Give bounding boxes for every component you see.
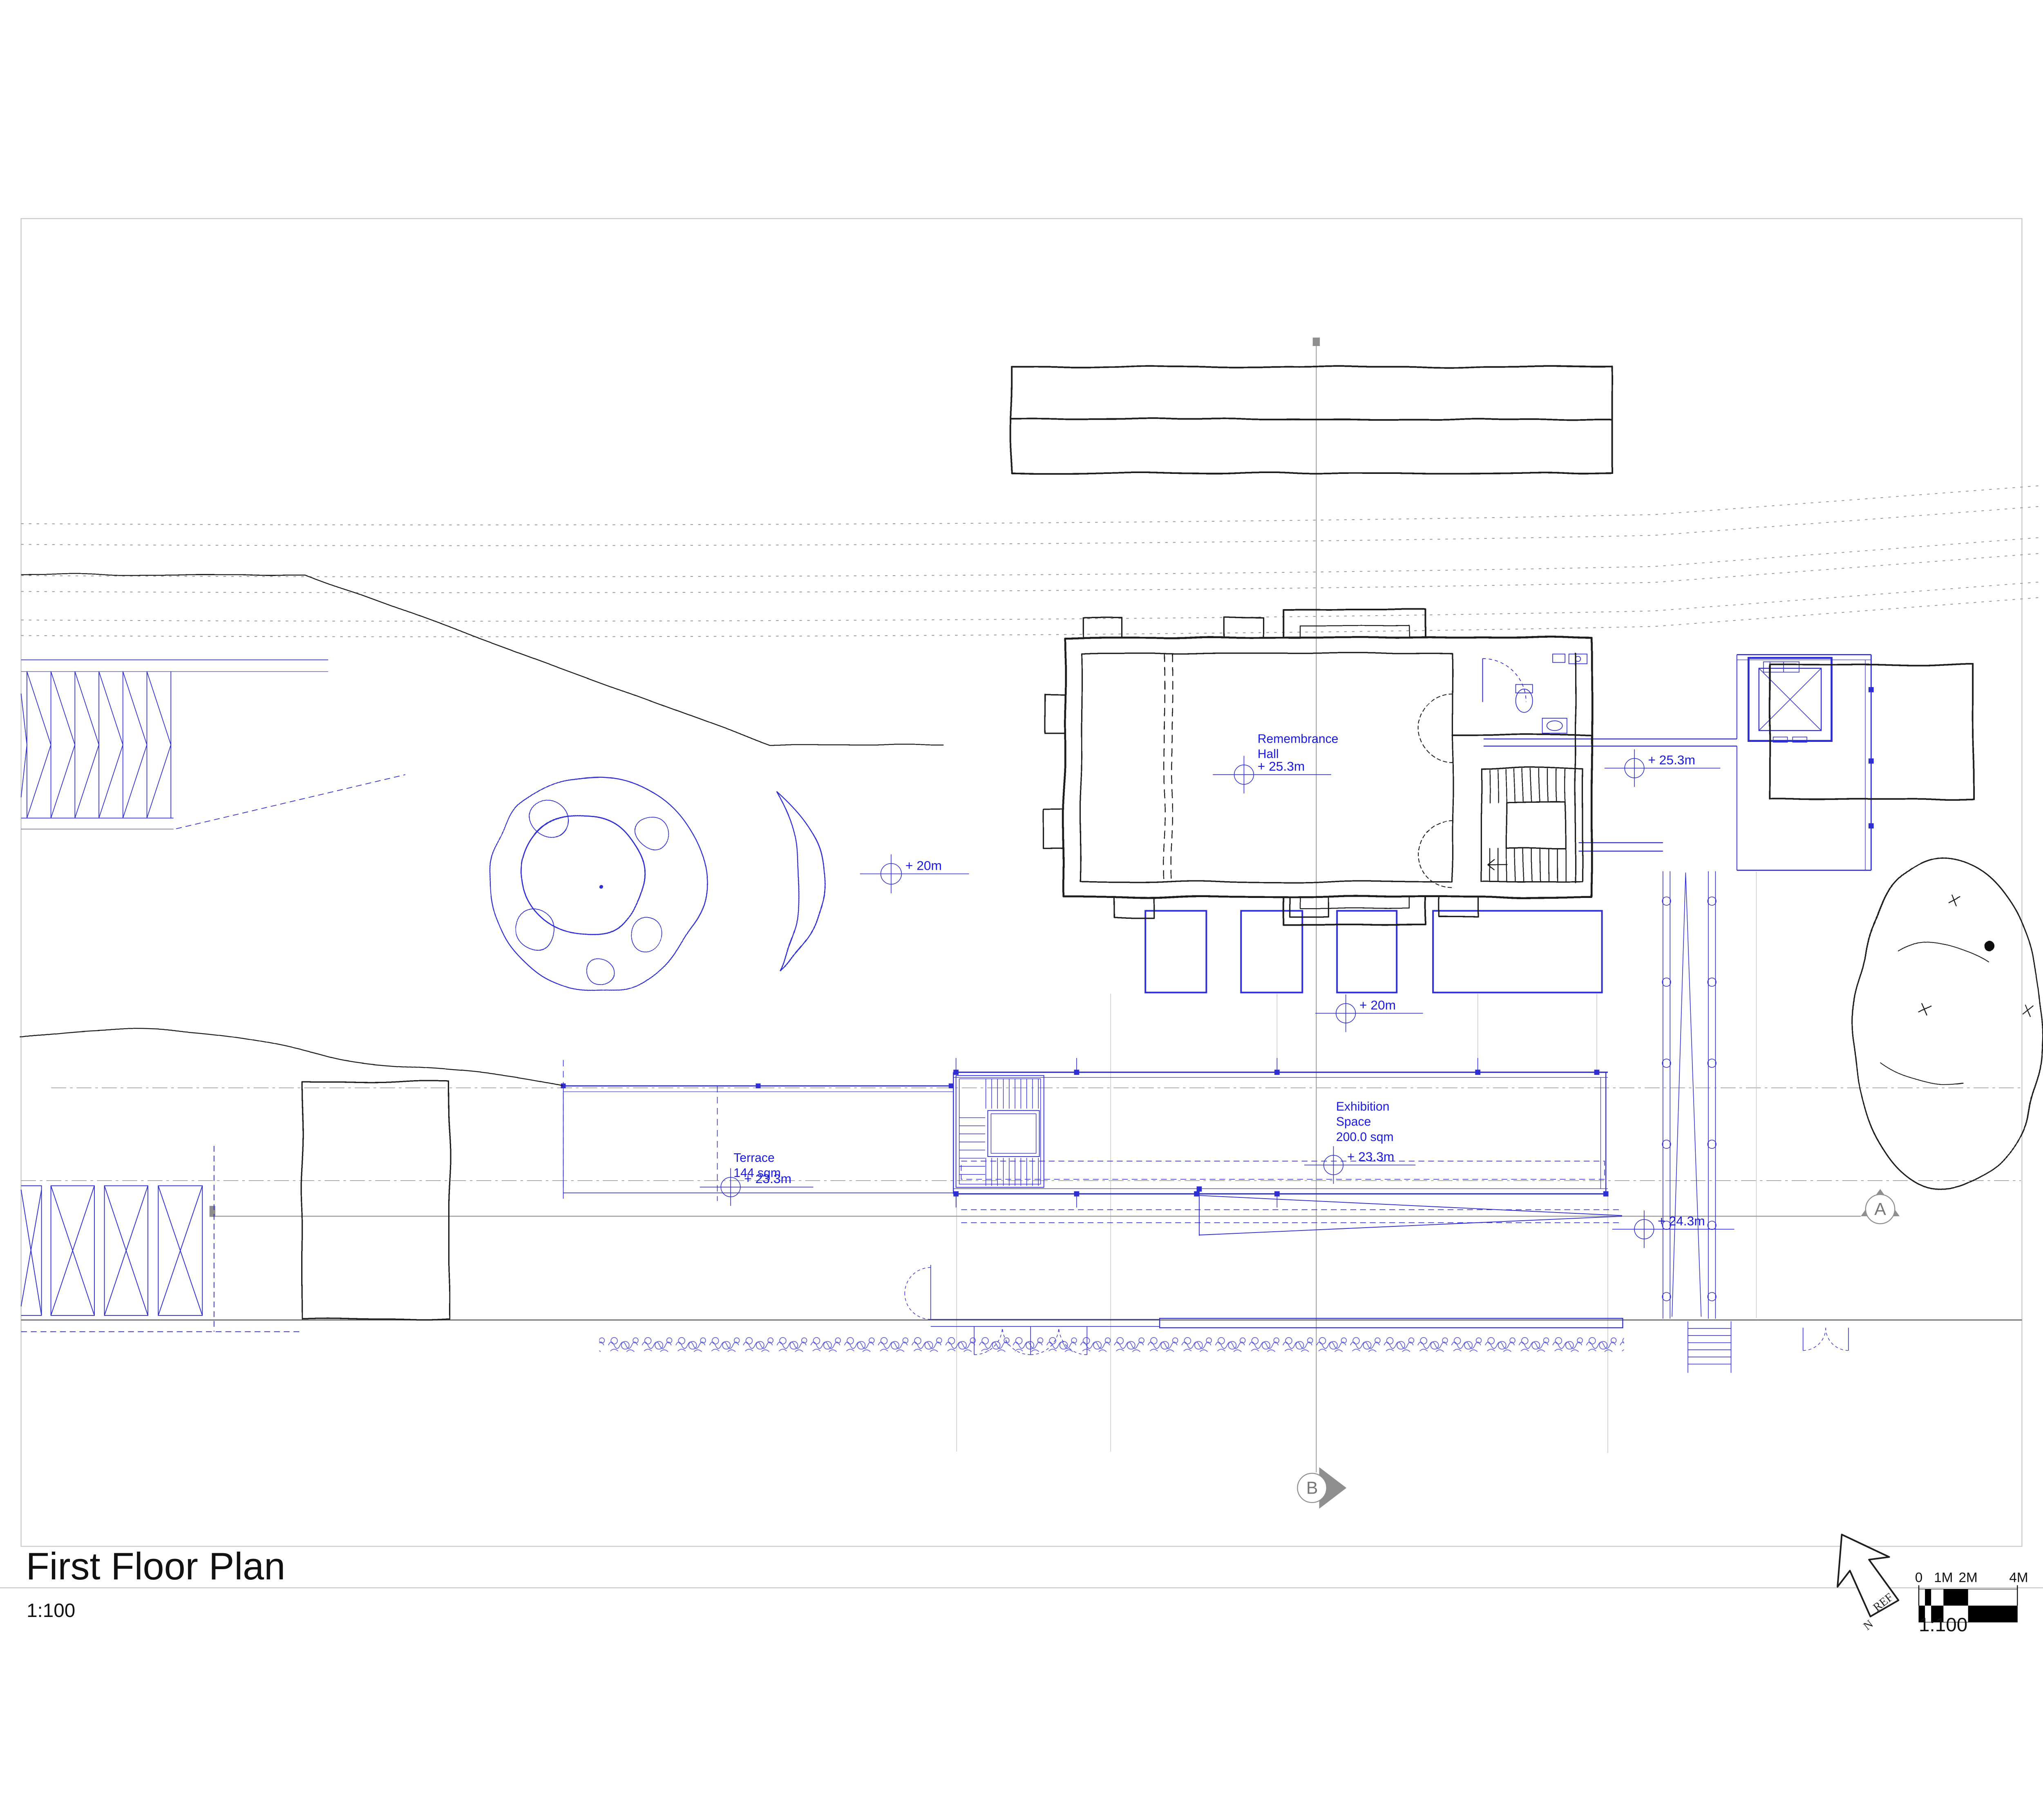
title-block: First Floor Plan 1:100	[0, 1545, 2043, 1621]
parking-bays	[21, 1186, 203, 1315]
drawing-scale: 1:100	[27, 1600, 75, 1621]
retaining-wall-top	[1012, 367, 1612, 473]
planter-level: + 20m	[1359, 998, 1396, 1012]
site-boundary	[21, 574, 943, 1087]
annotations: Remembrance Hall + 25.3m + 25.3m Exhibit…	[700, 732, 1735, 1248]
wc-fixtures	[1483, 654, 1587, 733]
svg-text:B: B	[1306, 1478, 1318, 1498]
garden-level: + 20m	[905, 858, 942, 873]
exhibition-label-2: Space	[1336, 1115, 1371, 1129]
hall-stair	[1481, 769, 1583, 882]
walkway-rails	[1578, 843, 1716, 1319]
lower-structure	[302, 1082, 449, 1319]
svg-text:1M: 1M	[1934, 1570, 1953, 1585]
exhibition-area: 200.0 sqm	[1336, 1130, 1394, 1144]
hall-label: Remembrance	[1258, 732, 1339, 746]
north-arrow: REF N	[1816, 1520, 1910, 1633]
elevator	[1748, 658, 1831, 742]
terrace-label: Terrace	[733, 1151, 775, 1165]
page-title: First Floor Plan	[26, 1545, 285, 1588]
exhibition-stair	[956, 1076, 1044, 1188]
scale-bar-ratio: 1:100	[1919, 1614, 1967, 1636]
roads	[21, 485, 2043, 636]
crescent-bed	[777, 791, 827, 968]
landing-level: + 25.3m	[1648, 753, 1695, 767]
svg-text:0: 0	[1915, 1570, 1923, 1585]
exhibition-label: Exhibition	[1336, 1100, 1390, 1113]
svg-text:A: A	[1874, 1199, 1886, 1219]
north-n-label: N	[1861, 1618, 1875, 1633]
section-line-b	[1313, 337, 1320, 1472]
chevron-canopy	[21, 660, 405, 829]
walkway-level: + 24.3m	[1658, 1213, 1705, 1228]
floor-plan-sheet: Remembrance Hall + 25.3m + 25.3m Exhibit…	[0, 0, 2043, 1820]
scale-bar: 0 1M 2M 4M 1:100	[1915, 1570, 2028, 1636]
exhibition-level: + 23.3m	[1347, 1149, 1395, 1164]
remembrance-hall-walls	[1044, 610, 1592, 925]
section-marker-b: B	[1297, 1467, 1346, 1509]
garden-stair	[1688, 1321, 1731, 1373]
outbuilding	[1770, 664, 1974, 799]
section-marker-a: A	[1861, 1189, 1900, 1224]
terrace-level: + 23.3m	[744, 1171, 791, 1186]
round-tree	[491, 777, 705, 992]
hedge-row	[599, 1330, 1624, 1355]
hall-level: + 25.3m	[1258, 759, 1305, 774]
large-tree	[1853, 859, 2042, 1193]
planters	[1145, 911, 1602, 992]
svg-text:4M: 4M	[2009, 1570, 2028, 1585]
svg-text:2M: 2M	[1959, 1570, 1978, 1585]
